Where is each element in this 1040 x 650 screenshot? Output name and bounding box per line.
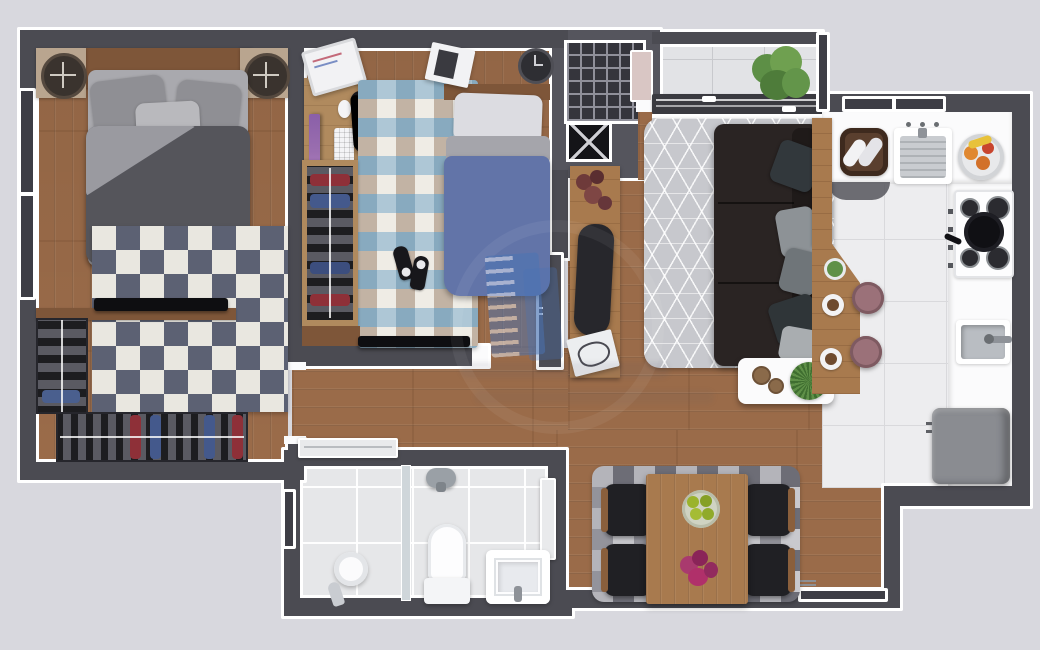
stove-knobs [948,198,953,268]
faucet-icon [984,334,994,344]
bathroom-door [540,478,556,560]
door-handle-icon [702,96,716,102]
dining-chair [604,484,652,536]
balcony-right-wall [816,32,830,112]
door-handle-icon [782,106,796,112]
floor-plan [0,0,1040,650]
doormat [630,50,653,102]
candle [768,378,784,394]
nightstand-right-clock [244,53,290,99]
dining-window [798,588,888,602]
wall-bed2-right [552,170,568,258]
bedroom-1-door [298,438,398,458]
bedroom-2-door-jamb [472,346,488,366]
guitar-decor [573,223,615,337]
flower-vase [676,548,720,590]
kitchen-sink [894,128,952,184]
fridge [932,408,1010,484]
faucet-icon [514,586,522,602]
mouse [338,100,351,118]
shower-glass [402,466,410,600]
bedroom-1-window [18,88,36,300]
elevator-shaft-icon [566,122,612,162]
coffee-cup [822,294,844,316]
dining-chair [604,544,652,596]
closet-bottom-row [56,412,248,462]
shelf-bedroom-2 [302,326,360,346]
nightstand-left-clock [41,53,87,99]
counter-shadow-object [828,182,890,200]
stove [954,190,1014,278]
kitchen-window [842,96,946,112]
dining-chair [744,484,792,536]
wall-balcony-top [652,32,822,44]
bread-basket [840,128,888,176]
dining-chair [744,544,792,596]
shower-stool [334,552,368,586]
wall-closet-bottom [20,462,304,480]
bathroom-window [282,489,296,549]
coffee-cup [820,348,842,370]
faucet-knob-icon [920,122,925,127]
wardrobe-bedroom-2 [302,160,358,326]
shower-head-icon [426,468,456,488]
wall-kitchen-bottom [884,486,1030,506]
fridge-handle-icon [926,422,932,425]
wall-clock-icon [518,48,554,84]
closet-left-column [36,318,88,414]
wall-bed2-bottom [288,346,488,366]
wall-top [20,30,568,48]
bed2-duvet [444,156,550,296]
apple-bowl [682,490,720,528]
tv-bedroom-1 [94,298,228,311]
faucet-icon [918,128,927,138]
toilet-tank [424,578,470,604]
faucet-knob-icon [906,122,911,127]
bar-plant [824,258,846,280]
bathroom-vanity [486,550,550,604]
fruit-bowl [958,134,1004,180]
dining-window-crank-icon [800,578,816,586]
breakfast-bar-upper [812,118,832,246]
wall-right [1012,94,1030,506]
balcony-plant [748,46,810,102]
toilet [428,524,466,582]
faucet-knob-icon [934,122,939,127]
tv-bedroom-2 [358,336,470,347]
prep-sink [956,320,1010,364]
bar-stool [852,282,884,314]
bar-stool [850,336,882,368]
frying-pan [964,212,1004,252]
dried-plant [574,170,614,218]
fridge-handle-icon [926,430,932,433]
